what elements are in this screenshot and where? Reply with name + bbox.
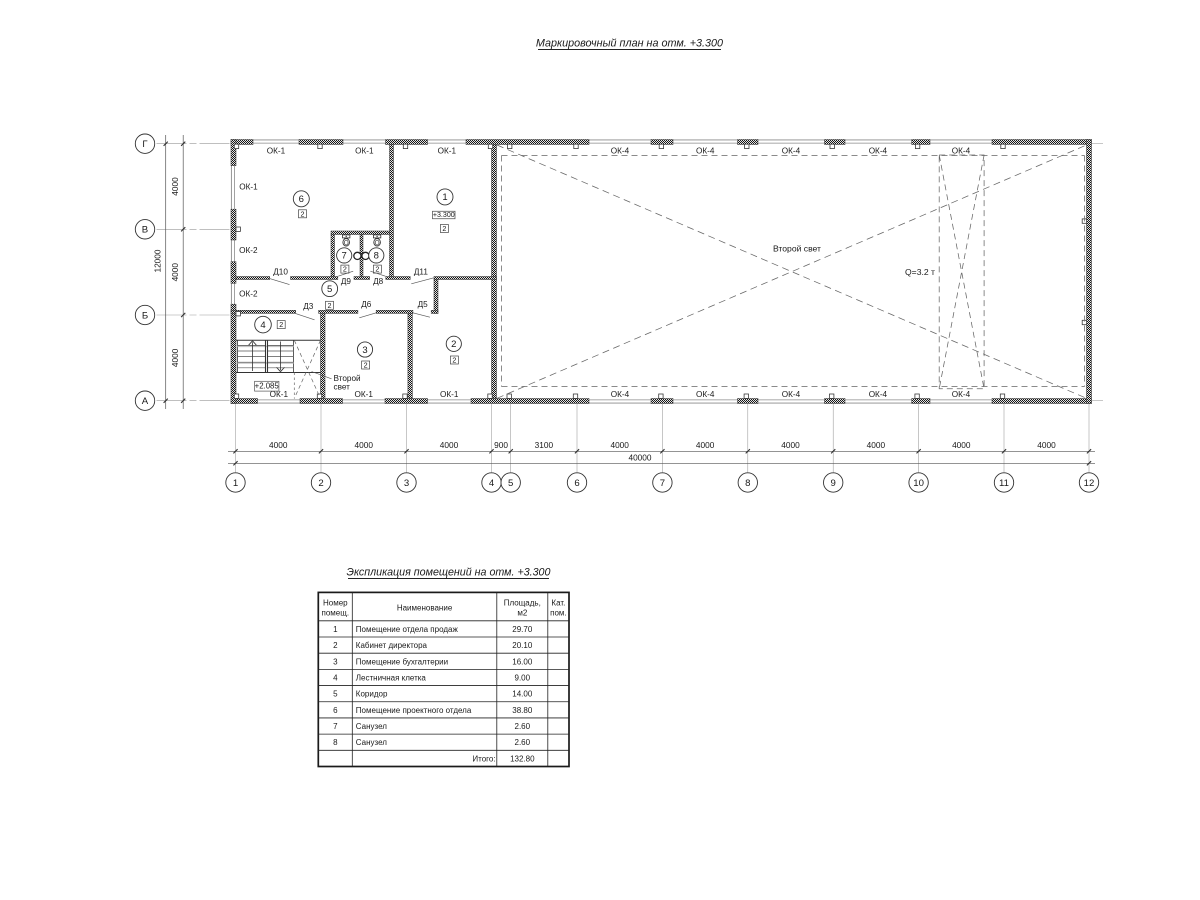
svg-text:4000: 4000	[170, 177, 180, 196]
svg-text:Д6: Д6	[361, 300, 372, 309]
svg-text:ОК-1: ОК-1	[438, 146, 457, 155]
svg-text:ОК-4: ОК-4	[696, 390, 715, 399]
svg-text:Кат.: Кат.	[551, 599, 565, 608]
svg-text:4000: 4000	[781, 440, 800, 450]
svg-text:Помещение отдела продаж: Помещение отдела продаж	[356, 625, 459, 634]
svg-text:7: 7	[660, 478, 665, 489]
svg-text:ОК-2: ОК-2	[239, 246, 258, 255]
svg-text:Q=3.2 т: Q=3.2 т	[905, 267, 935, 277]
svg-text:4: 4	[489, 478, 495, 489]
svg-text:6: 6	[299, 194, 304, 205]
svg-text:2: 2	[328, 301, 332, 310]
svg-text:Санузел: Санузел	[356, 722, 387, 731]
svg-text:5: 5	[327, 284, 332, 295]
svg-text:8: 8	[745, 478, 750, 489]
svg-text:9.00: 9.00	[515, 673, 531, 682]
svg-text:2.60: 2.60	[515, 722, 531, 731]
svg-text:2: 2	[318, 478, 323, 489]
svg-text:20.10: 20.10	[512, 641, 533, 650]
svg-text:ОК-1: ОК-1	[355, 146, 374, 155]
svg-text:11: 11	[999, 478, 1009, 489]
svg-text:Д9: Д9	[341, 277, 352, 286]
svg-text:Помещение проектного отдела: Помещение проектного отдела	[356, 706, 472, 715]
svg-text:1: 1	[233, 478, 238, 489]
svg-text:4000: 4000	[952, 440, 971, 450]
svg-text:помещ.: помещ.	[322, 609, 350, 618]
svg-text:3: 3	[362, 345, 367, 356]
svg-text:Д10: Д10	[273, 268, 288, 277]
svg-text:4: 4	[260, 320, 265, 331]
svg-text:9: 9	[831, 478, 836, 489]
svg-text:2: 2	[452, 356, 456, 365]
svg-text:4000: 4000	[440, 440, 459, 450]
svg-text:2: 2	[333, 641, 338, 650]
svg-text:ОК-4: ОК-4	[952, 390, 971, 399]
svg-text:Наименование: Наименование	[397, 604, 453, 613]
svg-text:ОК-4: ОК-4	[611, 146, 630, 155]
svg-text:+3.300: +3.300	[433, 211, 455, 219]
svg-text:6: 6	[574, 478, 579, 489]
svg-text:2: 2	[343, 265, 347, 274]
svg-text:ОК-2: ОК-2	[239, 289, 258, 298]
svg-text:3: 3	[333, 657, 338, 666]
svg-text:А: А	[142, 396, 149, 407]
svg-text:12: 12	[1084, 478, 1095, 489]
svg-text:Помещение бухгалтерии: Помещение бухгалтерии	[356, 657, 448, 666]
svg-text:ОК-1: ОК-1	[354, 390, 373, 399]
svg-text:1: 1	[442, 192, 447, 203]
svg-text:8: 8	[333, 738, 338, 747]
svg-text:Санузел: Санузел	[356, 738, 387, 747]
svg-text:ОК-4: ОК-4	[611, 390, 630, 399]
svg-text:7: 7	[342, 251, 347, 262]
svg-text:12000: 12000	[153, 249, 163, 272]
svg-text:Номер: Номер	[323, 599, 348, 608]
svg-text:4000: 4000	[610, 440, 629, 450]
svg-text:Маркировочный план на отм. +3.: Маркировочный план на отм. +3.300	[536, 38, 723, 50]
svg-text:+2.085: +2.085	[255, 382, 280, 391]
svg-text:Д3: Д3	[303, 302, 314, 311]
svg-text:2.60: 2.60	[515, 738, 531, 747]
svg-text:1: 1	[333, 625, 338, 634]
svg-text:132.80: 132.80	[510, 754, 535, 763]
svg-text:ОК-4: ОК-4	[869, 390, 888, 399]
svg-text:Итого:: Итого:	[472, 754, 495, 763]
svg-text:8: 8	[374, 251, 379, 262]
svg-text:4000: 4000	[269, 440, 288, 450]
svg-text:ОК-1: ОК-1	[239, 183, 258, 192]
svg-text:свет: свет	[334, 383, 351, 392]
svg-text:4000: 4000	[1037, 440, 1056, 450]
svg-text:ОК-1: ОК-1	[440, 390, 459, 399]
svg-text:10: 10	[913, 478, 924, 489]
svg-text:5: 5	[333, 690, 338, 699]
svg-text:14.00: 14.00	[512, 690, 533, 699]
svg-text:Д5: Д5	[418, 300, 429, 309]
svg-text:м2: м2	[517, 609, 528, 618]
svg-text:ОК-4: ОК-4	[782, 390, 801, 399]
svg-text:2: 2	[364, 361, 368, 370]
svg-text:7: 7	[333, 722, 338, 731]
svg-text:ОК-4: ОК-4	[782, 146, 801, 155]
svg-text:4000: 4000	[170, 348, 180, 367]
svg-text:Б: Б	[142, 310, 148, 321]
svg-text:5: 5	[508, 478, 513, 489]
svg-text:ОК-4: ОК-4	[696, 146, 715, 155]
svg-text:ОК-4: ОК-4	[869, 146, 888, 155]
svg-text:2: 2	[451, 339, 456, 350]
svg-text:4000: 4000	[867, 440, 886, 450]
svg-text:4000: 4000	[170, 263, 180, 282]
svg-text:900: 900	[494, 440, 508, 450]
svg-text:Д11: Д11	[414, 268, 428, 277]
svg-text:Г: Г	[142, 139, 148, 150]
svg-text:16.00: 16.00	[512, 657, 533, 666]
svg-text:29.70: 29.70	[512, 625, 533, 634]
svg-text:6: 6	[333, 706, 338, 715]
svg-text:38.80: 38.80	[512, 706, 533, 715]
svg-text:2: 2	[375, 265, 379, 274]
svg-text:4000: 4000	[355, 440, 374, 450]
svg-text:40000: 40000	[628, 453, 651, 463]
svg-text:4000: 4000	[696, 440, 715, 450]
svg-text:Коридор: Коридор	[356, 690, 388, 699]
svg-text:пом.: пом.	[550, 609, 567, 618]
svg-text:Площадь,: Площадь,	[504, 599, 541, 608]
svg-text:3: 3	[404, 478, 409, 489]
svg-text:Экспликация помещений на отм.: Экспликация помещений на отм. +3.300	[347, 567, 551, 579]
svg-text:2: 2	[301, 209, 305, 218]
svg-text:ОК-4: ОК-4	[952, 146, 971, 155]
svg-text:Лестничная клетка: Лестничная клетка	[356, 673, 427, 682]
svg-text:ОК-1: ОК-1	[267, 146, 286, 155]
svg-text:В: В	[142, 225, 148, 236]
svg-text:3100: 3100	[535, 440, 554, 450]
svg-text:2: 2	[279, 320, 283, 329]
svg-text:Кабинет директора: Кабинет директора	[356, 641, 428, 650]
svg-text:2: 2	[442, 224, 446, 233]
svg-text:4: 4	[333, 673, 338, 682]
svg-text:Д8: Д8	[373, 277, 384, 286]
svg-text:Второй свет: Второй свет	[773, 244, 821, 254]
